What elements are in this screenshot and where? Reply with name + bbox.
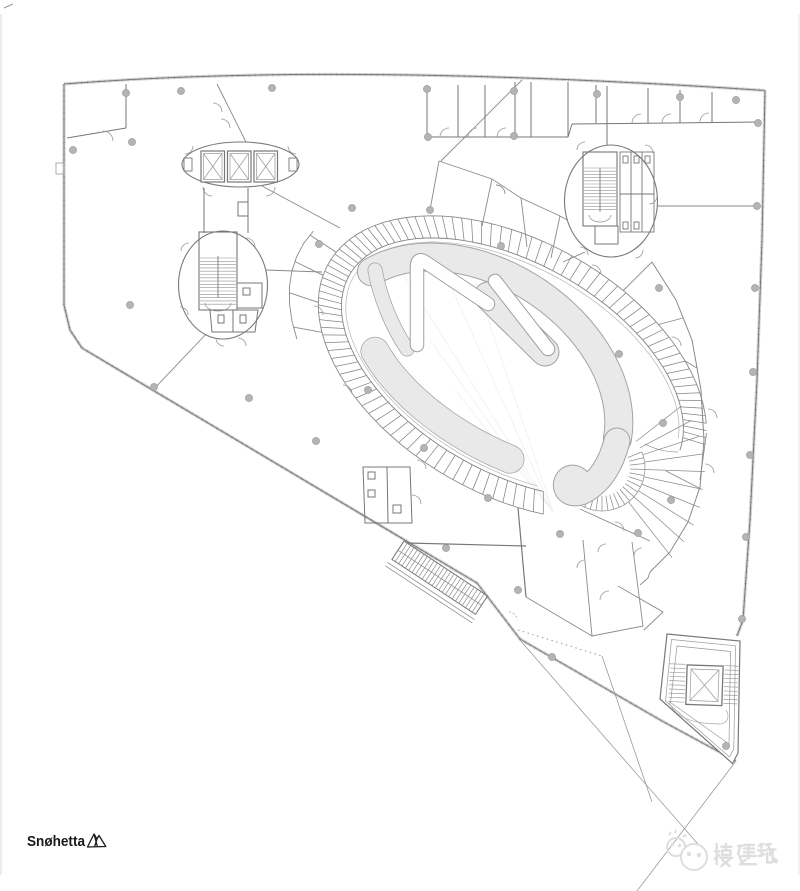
svg-text:Snøhetta: Snøhetta <box>27 833 86 850</box>
